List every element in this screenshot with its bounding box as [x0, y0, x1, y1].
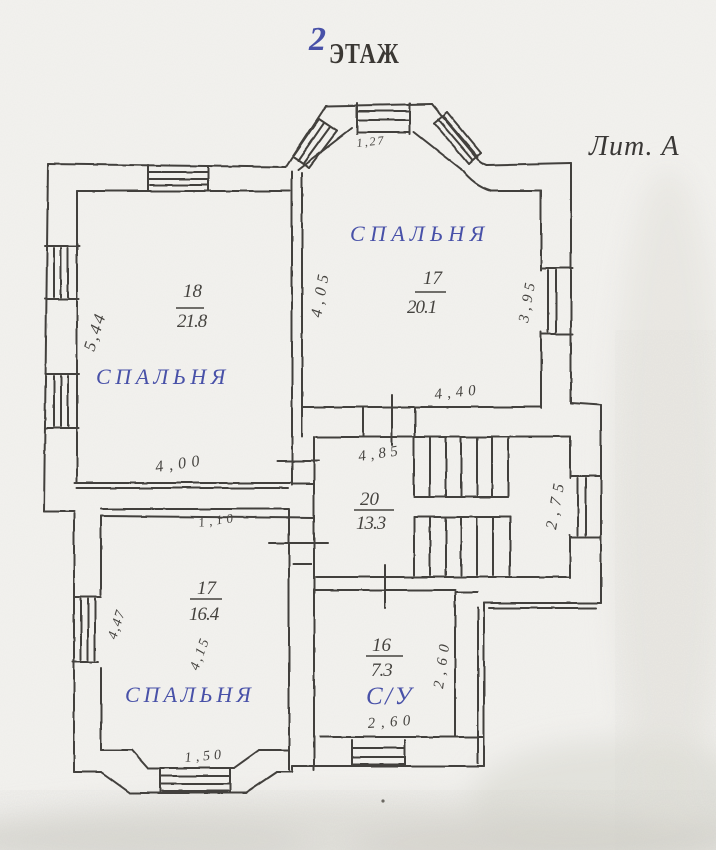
svg-text:ЭТАЖ: ЭТАЖ — [329, 39, 400, 70]
svg-text:20: 20 — [360, 489, 380, 510]
svg-text:17: 17 — [423, 268, 444, 289]
svg-text:СПАЛЬНЯ: СПАЛЬНЯ — [350, 221, 490, 246]
svg-text:7.3: 7.3 — [371, 660, 392, 681]
svg-text:18: 18 — [183, 281, 203, 302]
svg-text:16: 16 — [372, 635, 392, 656]
svg-text:2: 2 — [308, 21, 326, 58]
svg-text:СПАЛЬНЯ: СПАЛЬНЯ — [96, 364, 230, 389]
svg-text:СПАЛЬНЯ: СПАЛЬНЯ — [125, 682, 255, 707]
svg-text:С/У: С/У — [366, 683, 415, 710]
svg-text:20.1: 20.1 — [407, 297, 436, 318]
svg-text:13.3: 13.3 — [356, 513, 386, 534]
svg-text:16.4: 16.4 — [189, 604, 220, 625]
svg-text:21.8: 21.8 — [177, 311, 208, 332]
svg-text:2,60: 2,60 — [367, 713, 416, 732]
svg-text:17: 17 — [197, 578, 218, 599]
svg-text:Лит. А: Лит. А — [588, 131, 680, 162]
